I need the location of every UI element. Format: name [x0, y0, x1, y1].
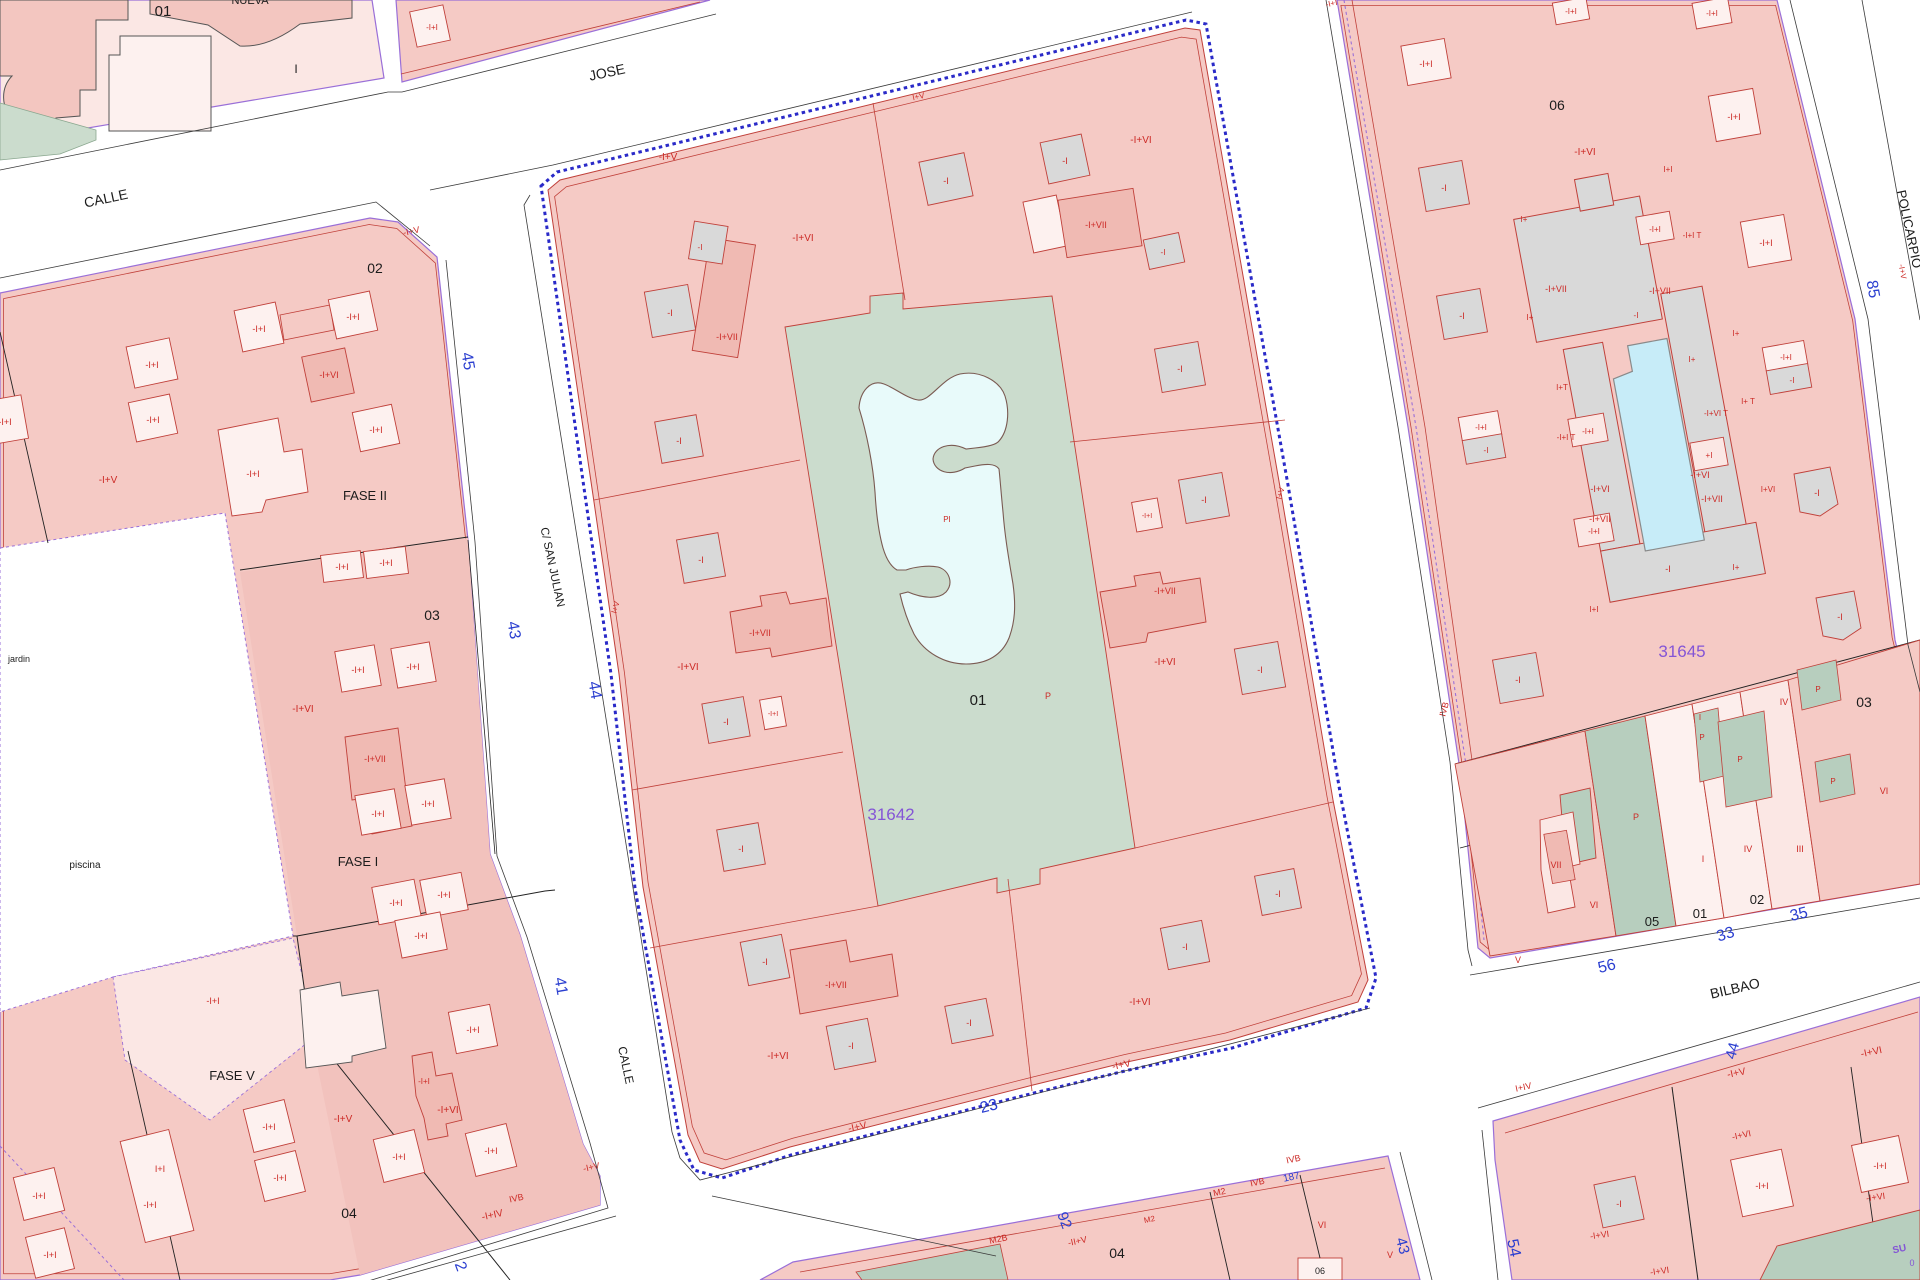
svg-text:-I+I: -I+I [466, 1025, 479, 1035]
svg-text:-I: -I [1665, 564, 1671, 574]
svg-text:I+T: I+T [1556, 383, 1568, 392]
svg-text:85: 85 [1863, 279, 1883, 300]
svg-text:I: I [294, 62, 297, 76]
svg-text:V: V [1387, 1250, 1393, 1260]
svg-text:06: 06 [1315, 1266, 1325, 1276]
svg-text:-I+I: -I+I [389, 898, 402, 908]
svg-text:-I+I: -I+I [414, 931, 427, 941]
svg-text:-I+VI: -I+VI [1590, 484, 1609, 494]
svg-text:-I+VII: -I+VII [749, 628, 771, 638]
svg-text:I+ T: I+ T [1741, 397, 1755, 406]
svg-text:31642: 31642 [867, 805, 914, 824]
svg-text:-I+VI: -I+VI [792, 233, 813, 244]
svg-text:-I+VI: -I+VI [1129, 997, 1150, 1008]
svg-text:-I: -I [1515, 675, 1521, 685]
svg-text:02: 02 [1750, 892, 1764, 907]
svg-text:-I+I: -I+I [32, 1191, 45, 1201]
svg-text:jardin: jardin [7, 654, 30, 664]
svg-text:-I+VII: -I+VII [716, 332, 738, 342]
svg-text:P: P [1830, 777, 1835, 786]
svg-text:-I+I: -I+I [421, 799, 434, 809]
svg-text:-I+I: -I+I [0, 417, 12, 427]
svg-text:45: 45 [458, 351, 478, 372]
svg-text:FASE V: FASE V [209, 1068, 255, 1083]
svg-text:I+: I+ [1527, 313, 1534, 322]
svg-text:-I: -I [1177, 364, 1183, 374]
svg-text:I+: I+ [1733, 563, 1740, 572]
svg-text:-I+I: -I+I [1759, 238, 1772, 248]
svg-text:I+I: I+I [155, 1164, 165, 1174]
svg-text:04: 04 [1109, 1245, 1125, 1261]
svg-text:+I: +I [1706, 451, 1713, 460]
svg-text:-I: -I [1616, 1199, 1622, 1209]
svg-text:-I: -I [1201, 495, 1207, 505]
svg-text:-I: -I [738, 844, 744, 854]
svg-text:05: 05 [1645, 914, 1659, 929]
svg-text:-I+I: -I+I [1419, 59, 1432, 69]
svg-text:44: 44 [585, 680, 605, 701]
svg-text:-I: -I [1634, 311, 1639, 320]
svg-text:54: 54 [1503, 1238, 1523, 1259]
svg-text:-I: -I [1161, 248, 1166, 257]
svg-text:piscina: piscina [69, 860, 101, 871]
svg-text:VI: VI [1590, 900, 1599, 910]
svg-text:-I+I: -I+I [252, 324, 265, 334]
svg-text:-I: -I [667, 308, 673, 318]
svg-text:NUEVA: NUEVA [231, 0, 269, 7]
svg-text:P: P [1815, 685, 1820, 694]
svg-text:-I+VI T: -I+VI T [1704, 409, 1728, 418]
svg-text:01: 01 [970, 692, 987, 709]
svg-text:-I+I: -I+I [351, 665, 364, 675]
svg-text:I: I [1702, 854, 1705, 864]
svg-text:-I+VII: -I+VII [825, 980, 847, 990]
svg-text:-I: -I [1257, 665, 1263, 675]
svg-text:FASE II: FASE II [343, 488, 387, 503]
svg-text:01: 01 [155, 3, 172, 20]
svg-text:-I+I: -I+I [1649, 225, 1661, 234]
svg-text:-I+VI: -I+VI [1690, 470, 1709, 480]
svg-text:-I+VI: -I+VI [677, 662, 698, 673]
svg-text:I+I: I+I [1663, 165, 1672, 174]
svg-text:-I: -I [676, 436, 682, 446]
svg-text:IV: IV [1744, 844, 1753, 854]
svg-text:-I+V: -I+V [659, 152, 678, 163]
svg-text:I: I [1699, 713, 1701, 722]
svg-text:-I+VI: -I+VI [767, 1051, 788, 1062]
svg-text:-I+I: -I+I [145, 360, 158, 370]
svg-text:P: P [1045, 691, 1051, 701]
svg-text:-I: -I [966, 1018, 972, 1028]
svg-text:-I+VII: -I+VII [1649, 286, 1671, 296]
svg-text:P: P [1737, 755, 1742, 764]
svg-text:-I+VII: -I+VII [1085, 220, 1107, 230]
svg-text:-I: -I [1814, 488, 1820, 498]
svg-text:-I+I: -I+I [406, 662, 419, 672]
svg-text:-I+I: -I+I [1142, 513, 1152, 520]
svg-text:-I+I: -I+I [246, 469, 259, 479]
svg-text:-I+I: -I+I [146, 415, 159, 425]
svg-text:-I+V: -I+V [99, 475, 118, 486]
svg-text:-I+I: -I+I [1780, 353, 1792, 362]
svg-text:-I+I: -I+I [1475, 423, 1487, 432]
svg-text:-I+VII: -I+VII [364, 754, 386, 764]
svg-text:-I+I: -I+I [1706, 9, 1718, 18]
svg-text:-I+VII: -I+VII [1545, 284, 1567, 294]
svg-text:-I: -I [1790, 376, 1795, 385]
svg-text:-I+I: -I+I [437, 890, 450, 900]
svg-text:-I+I: -I+I [369, 425, 382, 435]
svg-text:-I+I: -I+I [1755, 1181, 1768, 1191]
svg-text:I+I: I+I [1589, 605, 1598, 614]
svg-text:-I+I: -I+I [418, 1077, 430, 1086]
svg-text:-I+I: -I+I [379, 558, 392, 568]
svg-text:-I: -I [848, 1041, 854, 1051]
svg-text:-I+I: -I+I [484, 1146, 497, 1156]
svg-text:-I: -I [1459, 311, 1465, 321]
svg-text:-I+I: -I+I [426, 23, 438, 32]
svg-text:-I: -I [698, 243, 703, 252]
svg-text:-I+I: -I+I [1727, 112, 1740, 122]
svg-text:I+VI: I+VI [1761, 485, 1775, 494]
svg-text:III: III [1796, 844, 1804, 854]
svg-text:-I+I: -I+I [143, 1200, 156, 1210]
svg-text:-I: -I [1441, 183, 1447, 193]
svg-text:-I+I: -I+I [768, 711, 778, 718]
svg-text:06: 06 [1549, 97, 1565, 113]
svg-text:-I: -I [1275, 889, 1281, 899]
svg-text:-I+VI: -I+VI [319, 370, 338, 380]
svg-text:-I+I: -I+I [346, 312, 359, 322]
svg-text:I+: I+ [1521, 215, 1528, 224]
svg-text:-I+I T: -I+I T [1683, 231, 1702, 240]
svg-text:-I+VI: -I+VI [292, 704, 313, 715]
svg-text:-I+I T: -I+I T [1557, 433, 1576, 442]
svg-text:-I+I: -I+I [1588, 527, 1600, 536]
svg-text:-I+V: -I+V [334, 1114, 353, 1125]
svg-text:-I+VII: -I+VII [1154, 586, 1176, 596]
svg-text:-I+I: -I+I [273, 1173, 286, 1183]
svg-text:-I: -I [698, 555, 704, 565]
svg-text:-I+VII: -I+VII [1589, 514, 1611, 524]
svg-text:V: V [1515, 955, 1521, 965]
svg-text:-I: -I [1484, 446, 1489, 455]
svg-text:03: 03 [424, 607, 440, 623]
svg-text:-I: -I [762, 957, 768, 967]
svg-text:-I+I: -I+I [392, 1152, 405, 1162]
svg-text:VI: VI [1880, 786, 1889, 796]
svg-text:04: 04 [341, 1205, 357, 1221]
svg-text:31645: 31645 [1658, 642, 1705, 661]
svg-text:-I+VI: -I+VI [437, 1105, 458, 1116]
svg-text:-I: -I [1182, 942, 1188, 952]
svg-text:-I+VI: -I+VI [1154, 657, 1175, 668]
svg-text:P: P [1633, 812, 1639, 822]
svg-text:-I+I: -I+I [206, 996, 219, 1006]
svg-text:01: 01 [1693, 906, 1707, 921]
svg-text:-I+I: -I+I [1873, 1161, 1886, 1171]
svg-text:-I+I: -I+I [335, 562, 348, 572]
svg-text:-I+I: -I+I [1582, 427, 1594, 436]
svg-text:-I: -I [723, 717, 729, 727]
svg-text:-I+I: -I+I [262, 1122, 275, 1132]
svg-text:41: 41 [551, 976, 571, 997]
svg-text:I+: I+ [1689, 355, 1696, 364]
svg-text:PI: PI [943, 515, 951, 524]
svg-text:P: P [1699, 733, 1704, 742]
svg-text:43: 43 [504, 620, 524, 641]
svg-text:-I: -I [943, 176, 949, 186]
svg-text:-I: -I [1062, 156, 1068, 166]
svg-text:IV: IV [1780, 697, 1789, 707]
svg-text:-I: -I [1837, 612, 1843, 622]
svg-text:02: 02 [367, 260, 383, 276]
svg-text:-I+I: -I+I [371, 809, 384, 819]
svg-text:FASE I: FASE I [338, 854, 378, 869]
svg-text:-I+I: -I+I [43, 1250, 56, 1260]
svg-text:VII: VII [1550, 860, 1561, 870]
svg-text:-I+VII: -I+VII [1701, 494, 1723, 504]
svg-text:03: 03 [1856, 694, 1872, 710]
svg-text:I+: I+ [1733, 329, 1740, 338]
svg-text:-I+VI: -I+VI [1130, 135, 1151, 146]
svg-text:0: 0 [1909, 1258, 1914, 1268]
svg-text:-I+I: -I+I [1565, 7, 1577, 16]
svg-text:-I+VI: -I+VI [1574, 147, 1595, 158]
svg-text:VI: VI [1318, 1220, 1327, 1230]
